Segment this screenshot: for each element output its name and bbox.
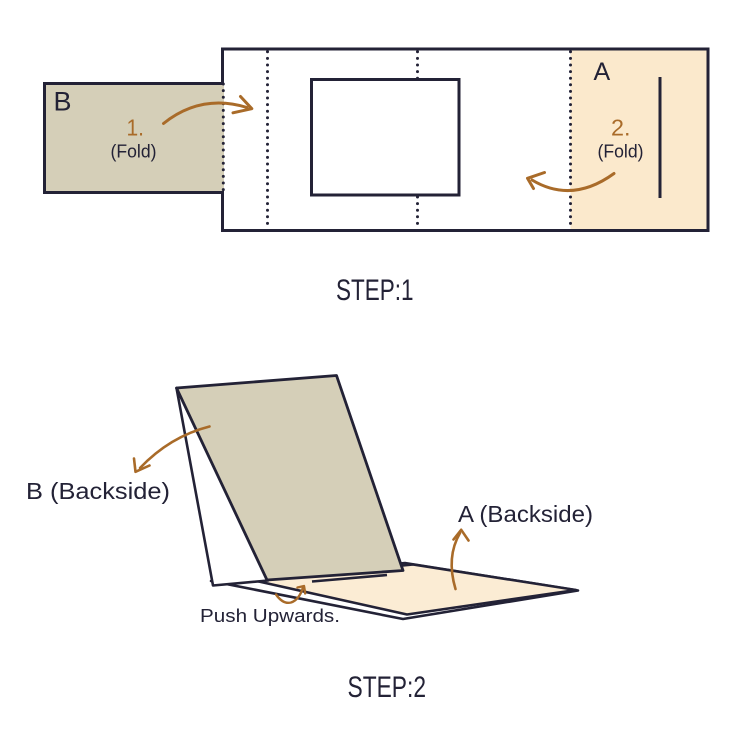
svg-text:STEP:2: STEP:2: [348, 671, 427, 704]
svg-text:Push Upwards.: Push Upwards.: [200, 605, 340, 626]
svg-text:(Fold): (Fold): [598, 141, 644, 162]
svg-text:STEP:1: STEP:1: [336, 274, 414, 307]
svg-text:2.: 2.: [611, 115, 631, 141]
svg-text:A (Backside): A (Backside): [458, 501, 593, 527]
svg-text:A: A: [594, 58, 611, 86]
svg-text:B (Backside): B (Backside): [26, 478, 170, 504]
svg-text:1.: 1.: [127, 115, 145, 141]
svg-text:(Fold): (Fold): [111, 141, 157, 162]
svg-text:B: B: [54, 87, 72, 117]
